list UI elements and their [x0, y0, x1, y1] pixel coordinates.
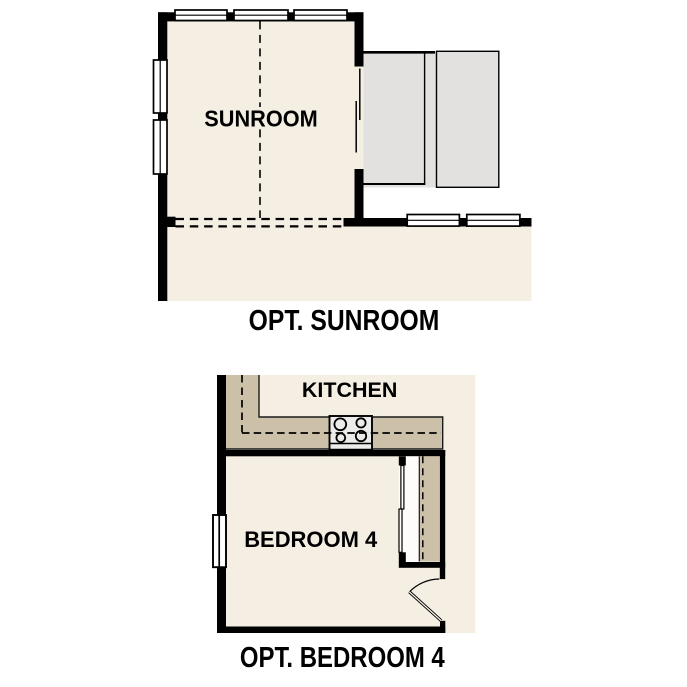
svg-text:SUNROOM: SUNROOM — [204, 105, 317, 131]
svg-text:OPT. SUNROOM: OPT. SUNROOM — [249, 305, 440, 337]
svg-text:OPT. BEDROOM 4: OPT. BEDROOM 4 — [240, 642, 445, 674]
svg-text:BEDROOM 4: BEDROOM 4 — [244, 527, 378, 552]
svg-text:KITCHEN: KITCHEN — [302, 379, 398, 402]
